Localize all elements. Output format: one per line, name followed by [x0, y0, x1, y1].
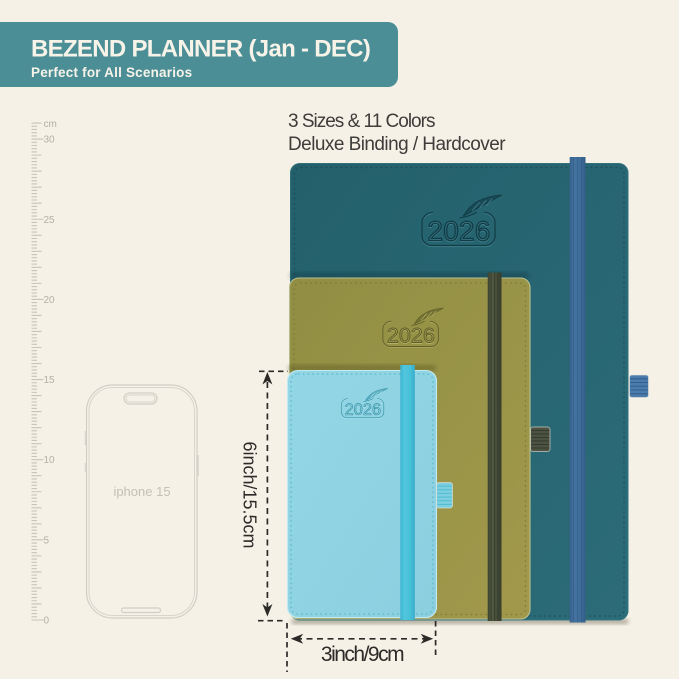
svg-text:25: 25	[44, 215, 56, 226]
svg-text:3 Sizes & 11 Colors: 3 Sizes & 11 Colors	[288, 111, 435, 132]
svg-text:15: 15	[44, 375, 56, 386]
svg-text:6inch/15.5cm: 6inch/15.5cm	[240, 441, 260, 548]
svg-text:cm: cm	[44, 119, 57, 130]
svg-text:2026: 2026	[345, 401, 382, 419]
svg-text:2026: 2026	[427, 216, 490, 247]
svg-text:BEZEND PLANNER (Jan - DEC): BEZEND PLANNER (Jan - DEC)	[31, 36, 370, 63]
svg-text:10: 10	[44, 455, 56, 466]
svg-text:30: 30	[44, 135, 56, 146]
svg-text:2026: 2026	[387, 324, 435, 348]
svg-text:20: 20	[44, 295, 56, 306]
svg-text:iphone 15: iphone 15	[113, 484, 170, 499]
svg-text:Perfect for All Scenarios: Perfect for All Scenarios	[31, 65, 192, 80]
svg-text:3inch/9cm: 3inch/9cm	[321, 643, 404, 666]
svg-text:5: 5	[44, 535, 50, 546]
svg-text:0: 0	[44, 616, 50, 627]
svg-text:Deluxe Binding / Hardcover: Deluxe Binding / Hardcover	[288, 134, 506, 155]
